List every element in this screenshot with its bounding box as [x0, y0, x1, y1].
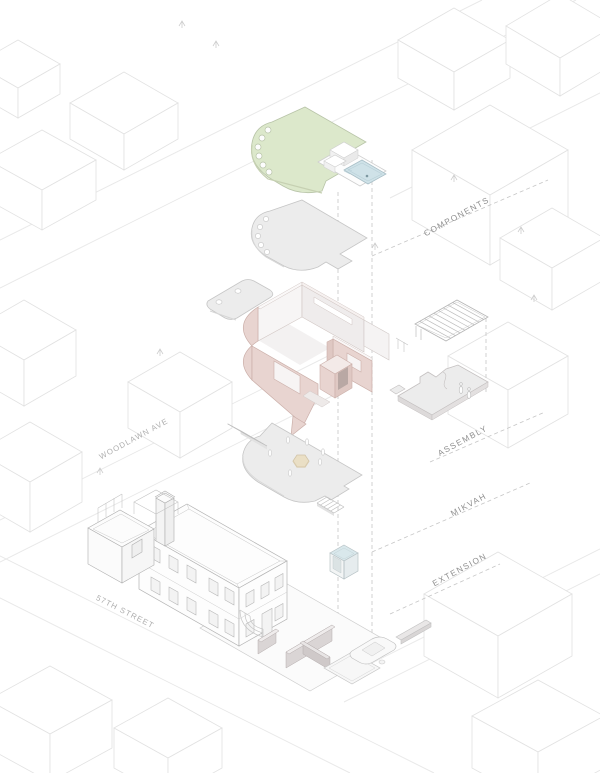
canopy-hole: [235, 289, 241, 293]
context-building: [0, 422, 82, 532]
green-roof-plate: [251, 107, 386, 193]
tree-icon: [157, 349, 163, 356]
label-57th-street: 57TH STREET: [95, 593, 156, 630]
context-building: [0, 300, 76, 406]
tree-icon: [179, 21, 185, 28]
mikvah-walls: [243, 282, 389, 436]
context-building: [398, 8, 510, 110]
context-building: [114, 698, 222, 773]
entry-box: [320, 355, 352, 398]
tree-icon: [213, 41, 219, 48]
chimney: [155, 491, 175, 546]
context-building: [506, 0, 600, 96]
mikvah-pool-cube: [330, 545, 358, 579]
exploded-axonometric-diagram: COMPONENTS ASSEMBLY MIKVAH EXTENSION WOO…: [0, 0, 600, 773]
canopy-hole: [216, 300, 222, 304]
leader-line-mikvah: [372, 483, 530, 552]
label-mikvah: MIKVAH: [449, 491, 489, 519]
tree-icon: [372, 243, 378, 250]
context-building: [0, 40, 60, 118]
white-return-wall: [364, 320, 389, 360]
yard-object: [379, 660, 385, 664]
main-floor-plate: [228, 423, 362, 516]
existing-building: [88, 490, 287, 646]
upper-floor-plate: [251, 200, 367, 270]
label-assembly: ASSEMBLY: [436, 423, 489, 458]
context-building: [128, 352, 232, 458]
context-building: [0, 666, 112, 773]
